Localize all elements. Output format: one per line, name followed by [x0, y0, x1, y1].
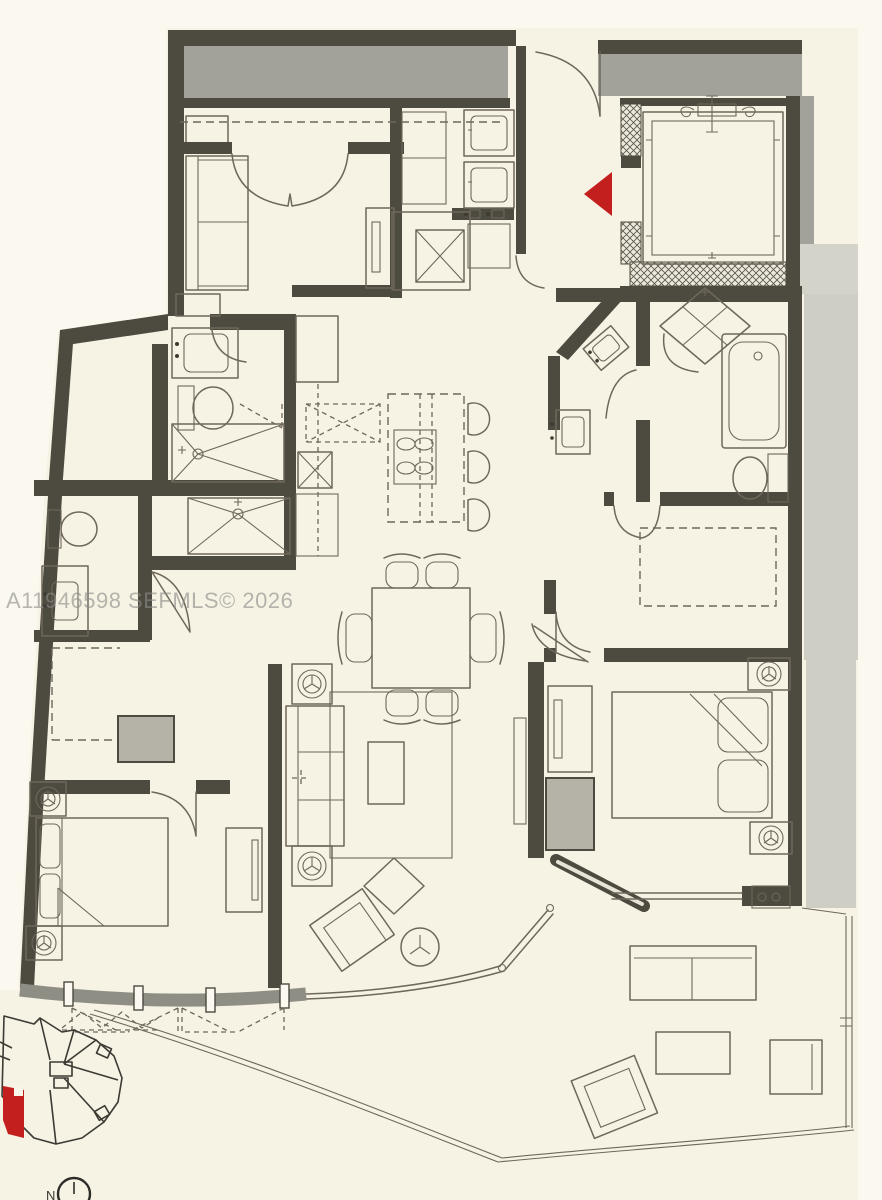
built-in-cabinet — [546, 778, 594, 850]
right-margin — [858, 0, 882, 1200]
mls-watermark: A11946598 SEFMLS© 2026 — [6, 588, 293, 613]
floorplan-photo-page: A11946598 SEFMLS© 2026 N — [0, 0, 882, 1200]
top-margin — [0, 0, 882, 28]
floorplan-drawing: A11946598 SEFMLS© 2026 N — [0, 0, 882, 1200]
north-label: N — [46, 1188, 55, 1200]
closet-built-in — [118, 716, 174, 762]
